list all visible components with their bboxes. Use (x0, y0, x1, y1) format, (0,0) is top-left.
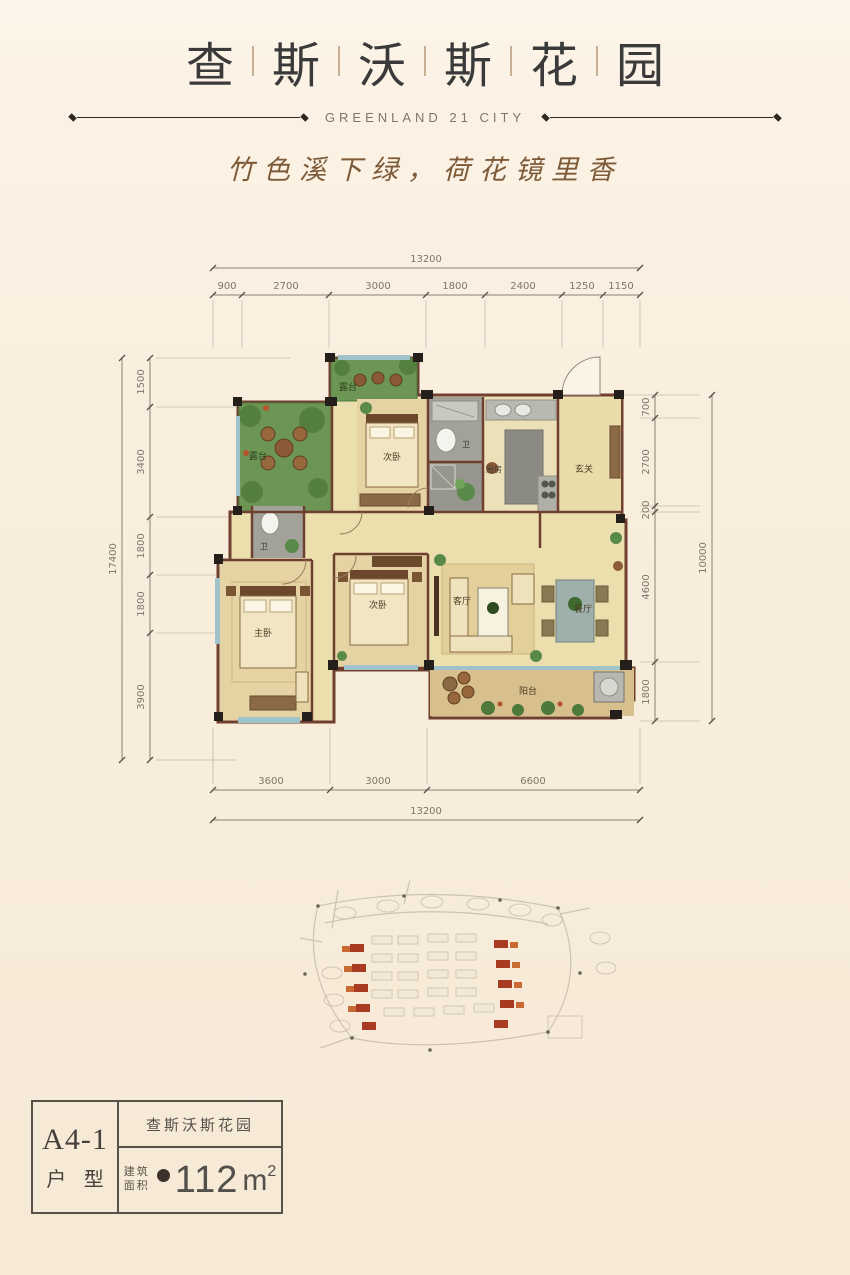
svg-text:1800: 1800 (136, 591, 147, 616)
svg-text:1800: 1800 (641, 679, 652, 704)
approx-dot-icon (157, 1169, 170, 1182)
svg-text:露台: 露台 (249, 450, 267, 462)
bathroom-mid: 卫 (252, 506, 304, 558)
entry-hall: 玄关 (558, 398, 621, 512)
svg-text:3400: 3400 (136, 449, 147, 474)
master-bedroom: 主卧 (220, 560, 312, 720)
unit-code-cell: A4-1 户 型 (33, 1102, 119, 1212)
svg-text:阳台: 阳台 (519, 685, 537, 697)
unit-code: A4-1 (42, 1123, 108, 1157)
svg-text:700: 700 (641, 397, 652, 416)
entry-door (562, 357, 600, 395)
living-room: 客厅 (434, 554, 542, 662)
svg-text:卫: 卫 (462, 440, 470, 449)
kitchen: 厨房 (483, 397, 558, 512)
site-plan (0, 878, 850, 1063)
svg-text:露台: 露台 (339, 381, 357, 393)
project-name: 查斯沃斯花园 (119, 1102, 281, 1148)
svg-text:1250: 1250 (569, 281, 594, 292)
site-buildings (322, 896, 616, 1038)
balcony: 阳台 (430, 666, 634, 716)
title-separator (510, 46, 512, 76)
svg-text:餐厅: 餐厅 (574, 603, 592, 615)
svg-text:客厅: 客厅 (453, 595, 471, 607)
svg-text:次卧: 次卧 (369, 599, 387, 611)
svg-text:3600: 3600 (258, 776, 283, 787)
svg-text:10000: 10000 (698, 542, 709, 574)
unit-detail-cell: 查斯沃斯花园 建筑 面积 112 m2 (119, 1102, 281, 1212)
rule-line (77, 117, 300, 118)
floor-plan: 13200 900 2700 3000 1800 2400 1250 1150 … (0, 248, 850, 873)
svg-text:3000: 3000 (365, 776, 390, 787)
unit-type-label: 户 型 (46, 1163, 110, 1192)
svg-text:13200: 13200 (410, 254, 442, 265)
shower-room (428, 462, 483, 512)
unit-info-card: A4-1 户 型 查斯沃斯花园 建筑 面积 112 m2 (31, 1100, 283, 1214)
area-label: 建筑 面积 (124, 1166, 150, 1194)
area-unit: m2 (242, 1163, 276, 1198)
rule-line (550, 117, 773, 118)
diamond-icon (541, 113, 550, 122)
svg-text:3900: 3900 (136, 684, 147, 709)
area-label-line2: 面积 (124, 1180, 150, 1192)
title-char: 沃 (358, 26, 406, 96)
area-exponent: 2 (267, 1163, 276, 1180)
svg-text:6600: 6600 (520, 776, 545, 787)
svg-text:次卧: 次卧 (383, 451, 401, 463)
subtitle-rule: GREENLAND 21 CITY (68, 110, 782, 125)
svg-text:玄关: 玄关 (575, 463, 593, 475)
svg-text:厨房: 厨房 (486, 464, 502, 474)
title-separator (424, 46, 426, 76)
title-char: 园 (616, 26, 664, 96)
terrace-left: 露台 (239, 403, 331, 511)
svg-text:1800: 1800 (442, 281, 467, 292)
svg-text:2700: 2700 (273, 281, 298, 292)
built-area: 建筑 面积 112 m2 (119, 1148, 281, 1212)
floorplan-poster: { "header": { "title_chars": ["查","斯","沃… (0, 0, 850, 1275)
title-char: 斯 (444, 26, 492, 96)
svg-text:200: 200 (641, 500, 652, 519)
bedroom-top: 次卧 (357, 399, 427, 511)
area-value: 112 (175, 1159, 239, 1202)
svg-text:主卧: 主卧 (254, 627, 272, 639)
poetic-tagline: 竹色溪下绿，荷花镜里香 (0, 148, 850, 187)
title-separator (252, 46, 254, 76)
title-char: 查 (186, 26, 234, 96)
svg-text:1800: 1800 (136, 533, 147, 558)
svg-text:4600: 4600 (641, 574, 652, 599)
svg-text:900: 900 (217, 281, 236, 292)
page-title: 查 斯 沃 斯 花 园 (0, 26, 850, 96)
title-char: 花 (530, 26, 578, 96)
svg-text:3000: 3000 (365, 281, 390, 292)
area-label-line1: 建筑 (124, 1166, 150, 1178)
title-separator (596, 46, 598, 76)
title-char: 斯 (272, 26, 320, 96)
bedroom-mid: 次卧 (334, 554, 428, 668)
title-separator (338, 46, 340, 76)
diamond-icon (68, 113, 77, 122)
svg-text:2700: 2700 (641, 449, 652, 474)
svg-text:1150: 1150 (608, 281, 633, 292)
diamond-icon (300, 113, 309, 122)
svg-text:17400: 17400 (108, 543, 119, 575)
site-roads (300, 880, 590, 1048)
diamond-icon (773, 113, 782, 122)
svg-text:1500: 1500 (136, 369, 147, 394)
terrace-top: 露台 (331, 357, 417, 401)
svg-text:2400: 2400 (510, 281, 535, 292)
svg-text:卫: 卫 (260, 542, 268, 551)
svg-text:13200: 13200 (410, 806, 442, 817)
bathroom-top: 卫 (428, 397, 483, 462)
project-subtitle: GREENLAND 21 CITY (325, 110, 525, 125)
